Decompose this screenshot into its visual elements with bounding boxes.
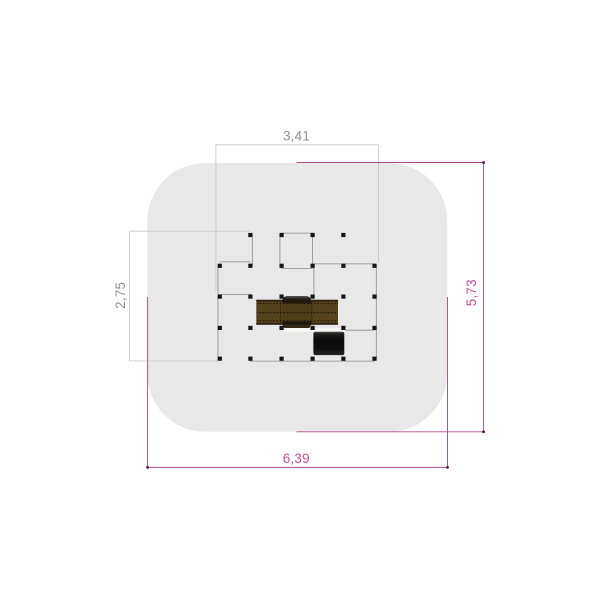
svg-text:2,75: 2,75 <box>113 282 128 309</box>
svg-text:3,41: 3,41 <box>283 129 310 144</box>
svg-text:5,73: 5,73 <box>464 279 479 306</box>
svg-text:6,39: 6,39 <box>283 451 310 466</box>
